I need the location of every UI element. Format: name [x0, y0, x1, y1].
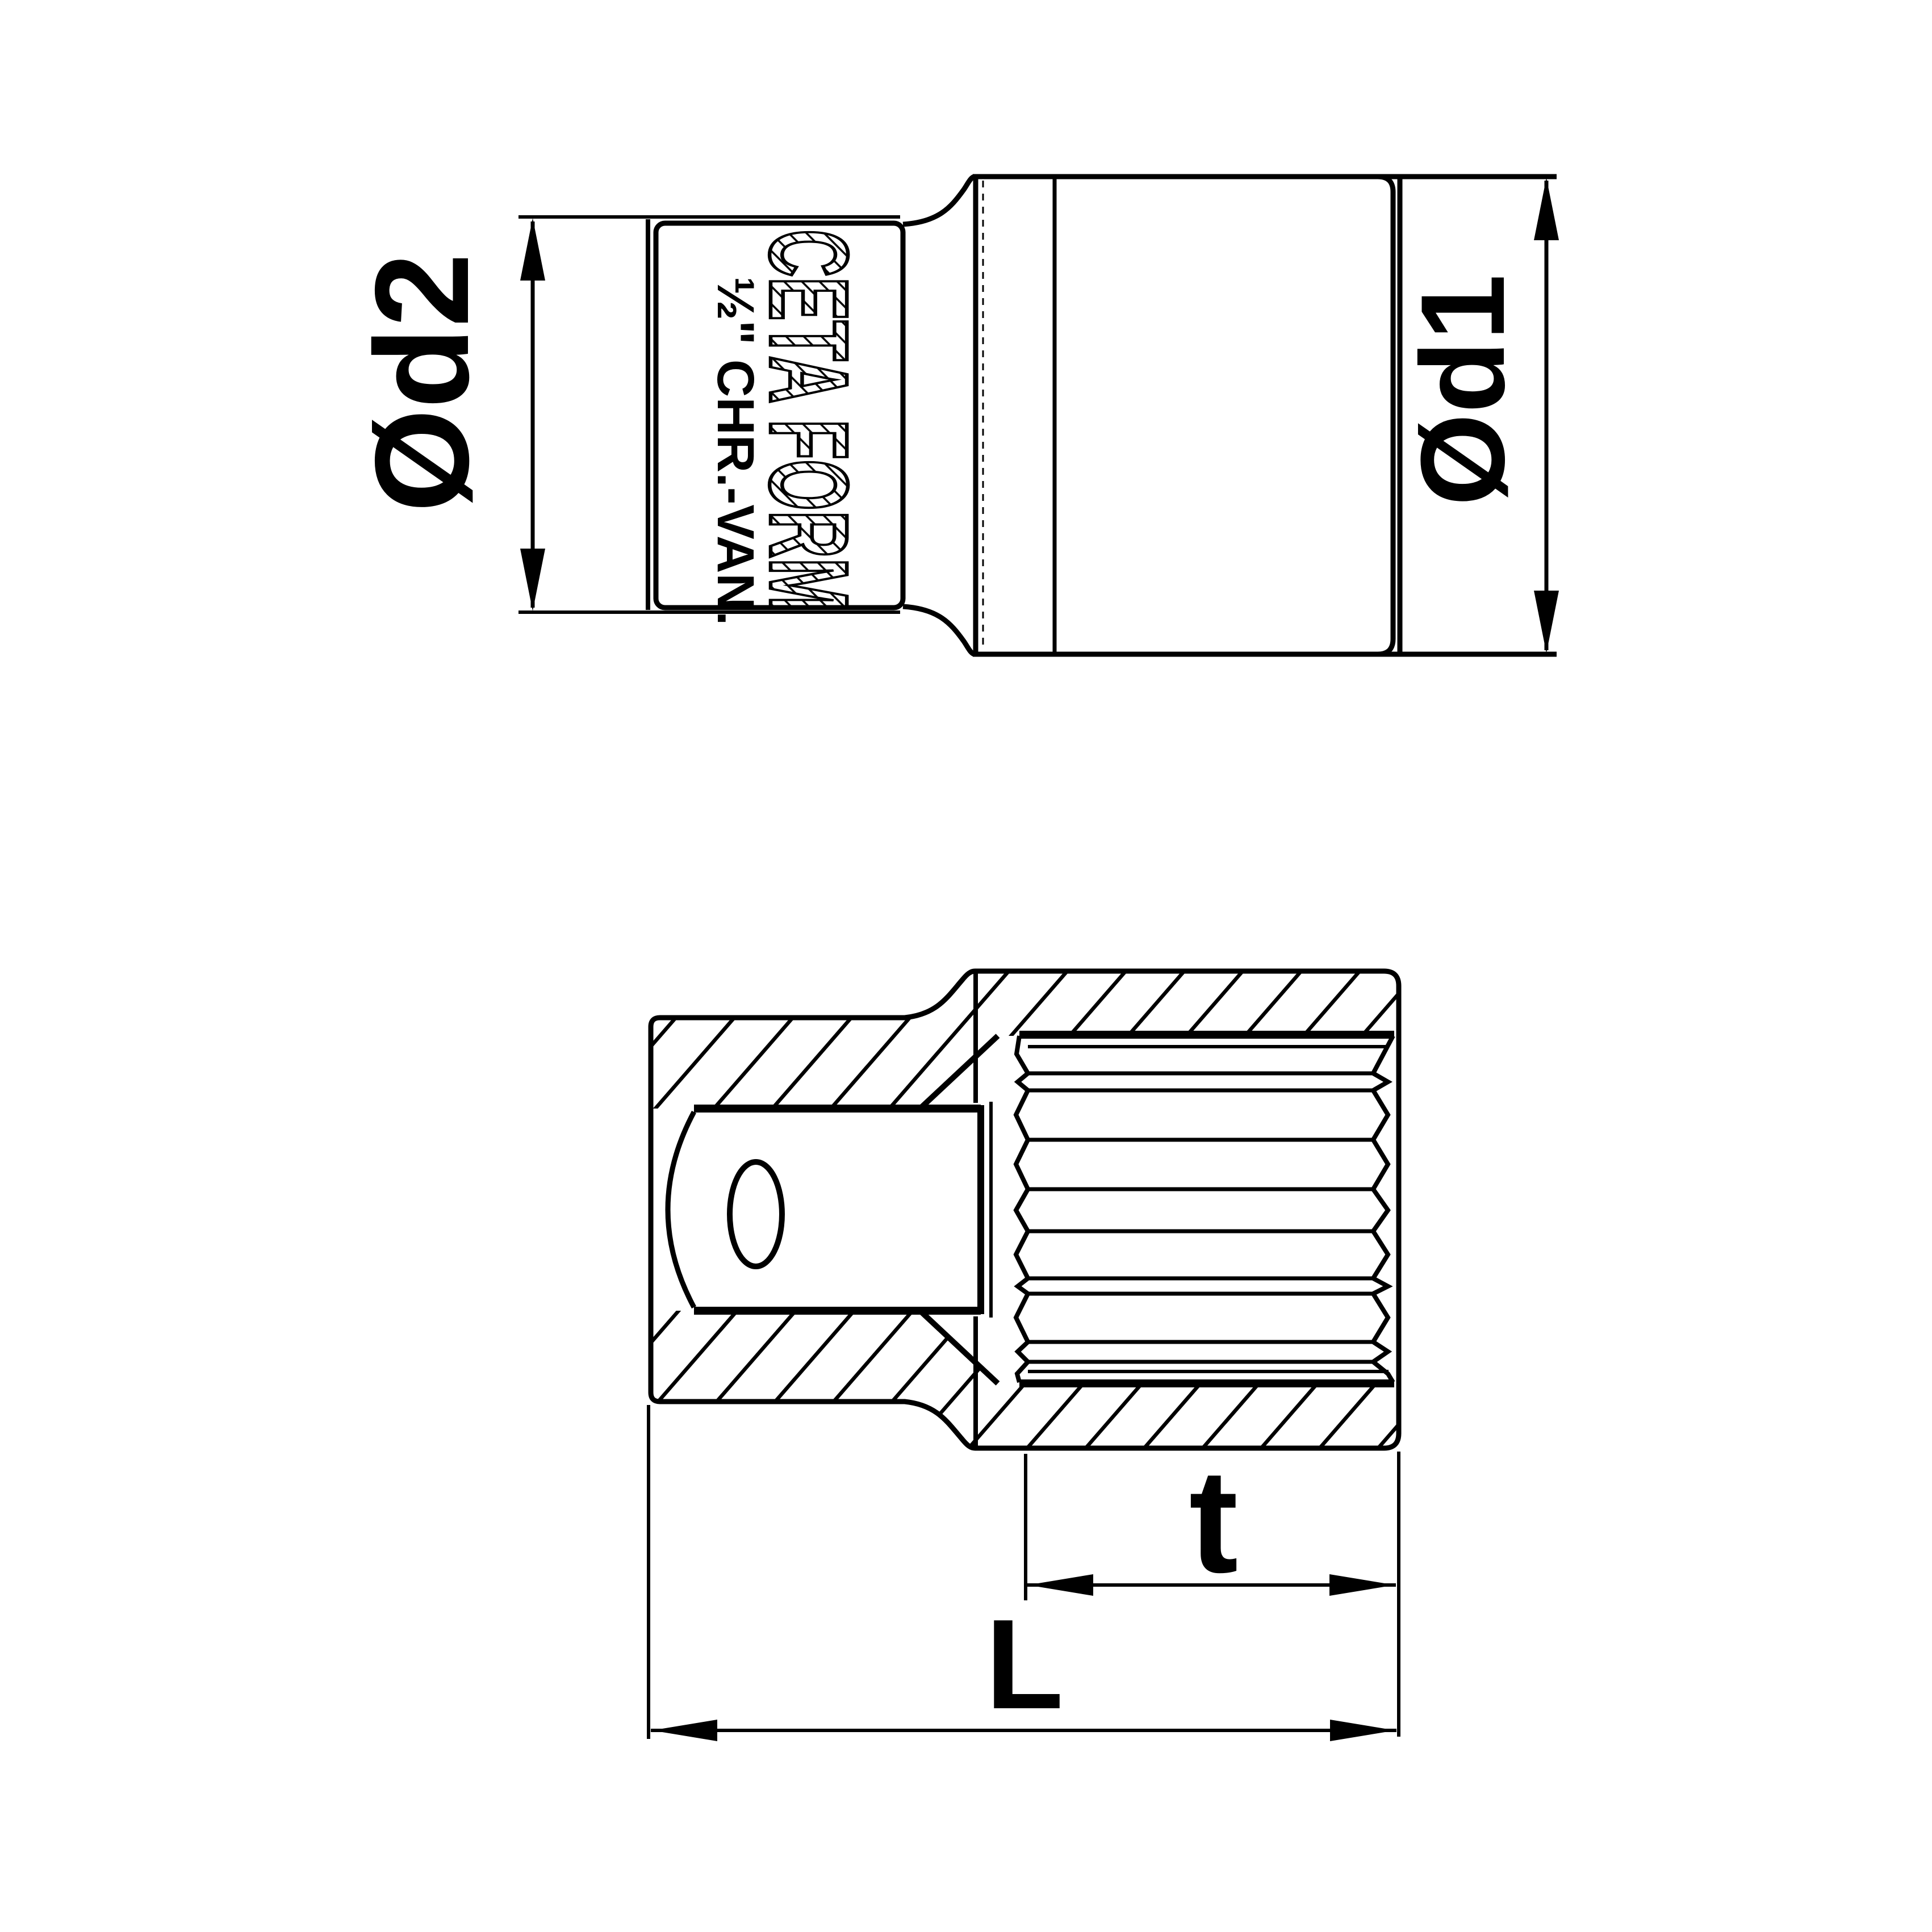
svg-text:Ød2: Ød2: [347, 253, 496, 512]
svg-text:½" CHR.-VAN.: ½" CHR.-VAN.: [706, 277, 764, 625]
svg-text:L: L: [985, 1592, 1063, 1736]
svg-text:CETA FORM: CETA FORM: [747, 229, 871, 613]
svg-text:Ød1: Ød1: [1396, 274, 1529, 506]
svg-text:t: t: [1189, 1439, 1239, 1604]
